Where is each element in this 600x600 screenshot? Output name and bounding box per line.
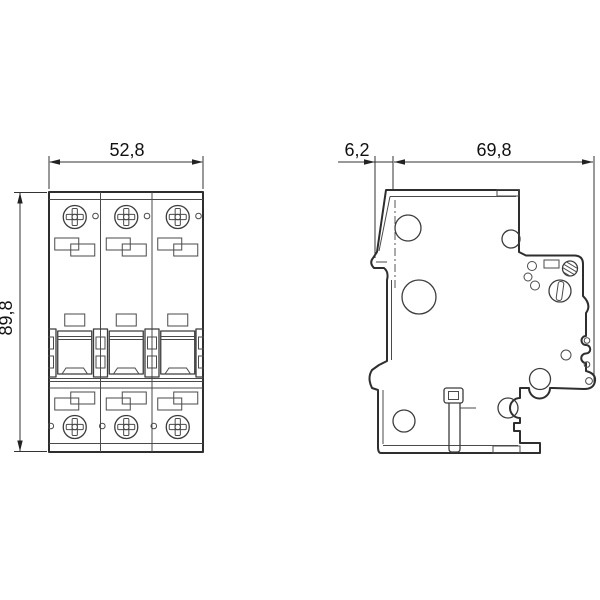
front-view: 52,8 89,8 (0, 140, 210, 452)
rivet-boss-right (530, 369, 551, 390)
clamp-screw-icon (560, 258, 580, 282)
pole-divider-lines (101, 200, 153, 444)
edge-notch-circle (502, 230, 520, 248)
housing-hole-bottom (393, 410, 415, 432)
side-view: 6,2 69,8 (338, 140, 595, 453)
dim-front-height-label: 89,8 (0, 300, 16, 335)
din-rail-slider (444, 388, 476, 452)
terminal-screw-icon (549, 280, 571, 302)
drawing-canvas: 52,8 89,8 (0, 0, 600, 600)
rivet-boss-lower (498, 398, 518, 418)
pole-1 (48, 206, 98, 439)
breaker-front-body (42, 192, 210, 452)
dim-front-width: 52,8 (49, 140, 203, 189)
housing-hole-top (395, 215, 421, 241)
dim-front-height: 89,8 (0, 193, 47, 452)
pole-3 (151, 206, 201, 439)
breaker-side-body (370, 190, 596, 454)
housing-hole-middle (402, 280, 436, 314)
dim-side-offset-label: 6,2 (344, 140, 369, 160)
dimension-drawing: 52,8 89,8 (0, 0, 600, 600)
terminal-slot (544, 260, 559, 268)
dim-side-depth-label: 69,8 (476, 140, 511, 160)
dim-front-width-label: 52,8 (109, 140, 144, 160)
pole-2 (100, 206, 150, 439)
